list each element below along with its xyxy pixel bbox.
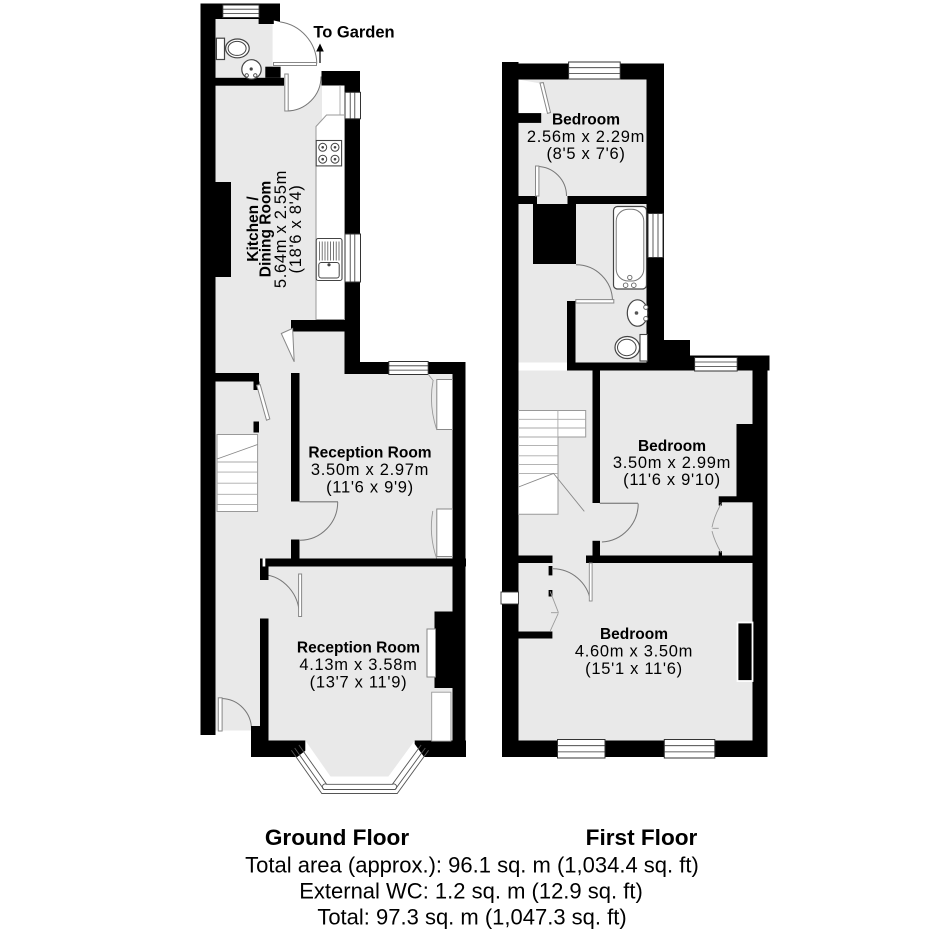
svg-text:To Garden: To Garden bbox=[313, 24, 394, 42]
svg-text:Total: 97.3 sq. m (1,047.3 sq.: Total: 97.3 sq. m (1,047.3 sq. ft) bbox=[317, 905, 626, 930]
svg-text:Total area (approx.): 96.1 sq.: Total area (approx.): 96.1 sq. m (1,034.… bbox=[245, 853, 699, 878]
svg-text:3.50m x 2.99m: 3.50m x 2.99m bbox=[613, 454, 731, 472]
svg-text:Bedroom: Bedroom bbox=[552, 112, 620, 129]
svg-text:(18'6 x 8'4): (18'6 x 8'4) bbox=[287, 185, 305, 274]
svg-text:4.60m x 3.50m: 4.60m x 3.50m bbox=[575, 643, 693, 661]
svg-text:(13'7 x 11'9): (13'7 x 11'9) bbox=[310, 674, 408, 692]
svg-text:Ground Floor: Ground Floor bbox=[265, 825, 410, 850]
svg-text:Bedroom: Bedroom bbox=[638, 438, 706, 455]
svg-text:(11'6 x 9'9): (11'6 x 9'9) bbox=[326, 479, 414, 497]
svg-text:(11'6 x 9'10): (11'6 x 9'10) bbox=[623, 471, 721, 489]
svg-text:Reception Room: Reception Room bbox=[297, 640, 420, 657]
svg-text:External WC: 1.2 sq. m (12.9 s: External WC: 1.2 sq. m (12.9 sq. ft) bbox=[299, 879, 643, 904]
svg-text:Bedroom: Bedroom bbox=[600, 626, 668, 643]
svg-text:Reception Room: Reception Room bbox=[308, 445, 431, 462]
svg-text:(8'5 x 7'6): (8'5 x 7'6) bbox=[546, 145, 625, 163]
svg-text:2.56m x 2.29m: 2.56m x 2.29m bbox=[527, 128, 645, 146]
svg-text:3.50m x 2.97m: 3.50m x 2.97m bbox=[311, 461, 429, 479]
svg-text:(15'1 x 11'6): (15'1 x 11'6) bbox=[585, 660, 683, 678]
svg-text:First Floor: First Floor bbox=[586, 825, 698, 850]
svg-text:4.13m x 3.58m: 4.13m x 3.58m bbox=[299, 656, 417, 674]
